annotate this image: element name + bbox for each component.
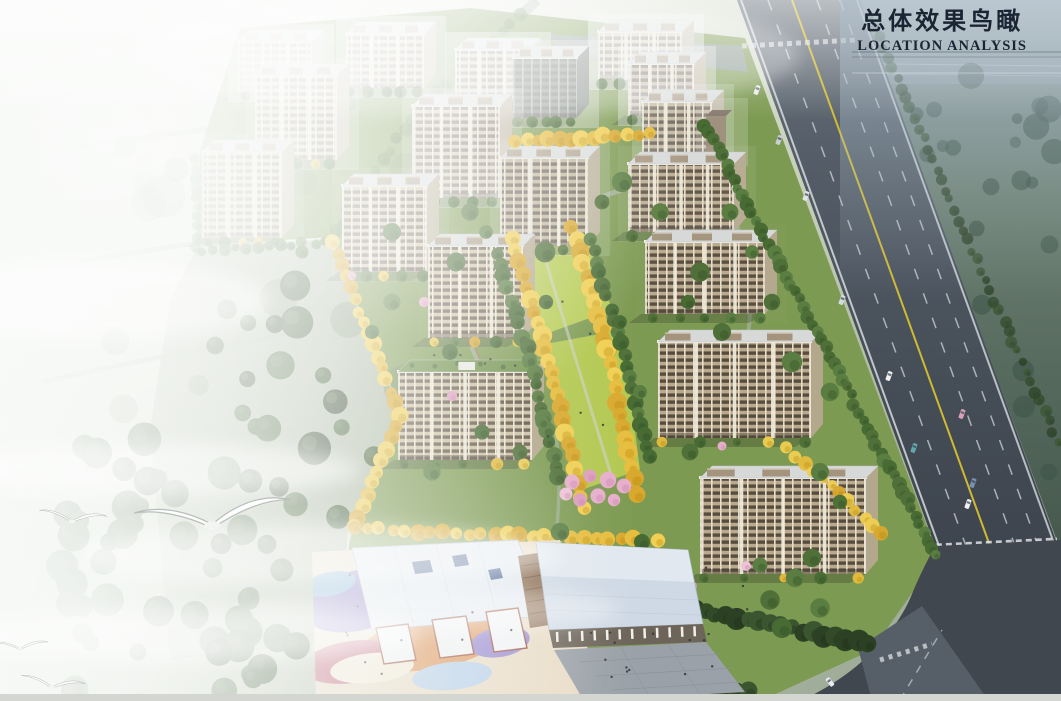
page-title: 总体效果鸟瞰 <box>857 7 1027 37</box>
bottom-border <box>0 694 1061 701</box>
aerial-rendering: 总体效果鸟瞰 LOCATION ANALYSIS <box>0 0 1061 701</box>
title-block: 总体效果鸟瞰 LOCATION ANALYSIS <box>857 7 1027 55</box>
page-subtitle: LOCATION ANALYSIS <box>857 38 1027 55</box>
fog-layer <box>0 0 1061 701</box>
aerial-rendering-svg <box>0 0 1061 701</box>
